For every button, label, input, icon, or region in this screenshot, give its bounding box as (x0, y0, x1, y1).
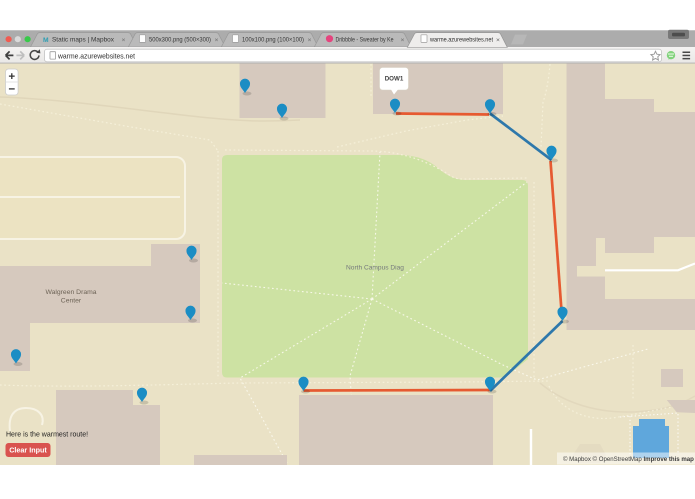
svg-text:© Mapbox © OpenStreetMap Impro: © Mapbox © OpenStreetMap Improve this ma… (563, 456, 694, 463)
svg-text:Dribbble - Sweater by Ke: Dribbble - Sweater by Ke (336, 37, 395, 44)
svg-text:500x300.png (500×300): 500x300.png (500×300) (149, 37, 211, 44)
svg-text:warme.azurewebsites.net: warme.azurewebsites.net (429, 37, 493, 44)
svg-text:Clear Input: Clear Input (9, 446, 47, 455)
svg-text:×: × (122, 37, 126, 44)
svg-text:×: × (401, 37, 405, 44)
svg-text:×: × (496, 37, 500, 44)
svg-text:Static maps | Mapbox: Static maps | Mapbox (52, 37, 115, 44)
svg-text:warme.azurewebsites.net: warme.azurewebsites.net (57, 51, 135, 60)
svg-text:×: × (215, 37, 219, 44)
svg-text:×: × (308, 37, 312, 44)
svg-text:Center: Center (61, 298, 82, 305)
svg-text:DOW1: DOW1 (385, 76, 404, 83)
svg-text:North Campus Diag: North Campus Diag (346, 265, 404, 272)
svg-text:Here is the warmest route!: Here is the warmest route! (6, 431, 88, 438)
svg-text:Walgreen Drama: Walgreen Drama (45, 289, 96, 296)
svg-text:M: M (43, 37, 49, 44)
svg-text:100x100.png (100×100): 100x100.png (100×100) (242, 37, 304, 44)
